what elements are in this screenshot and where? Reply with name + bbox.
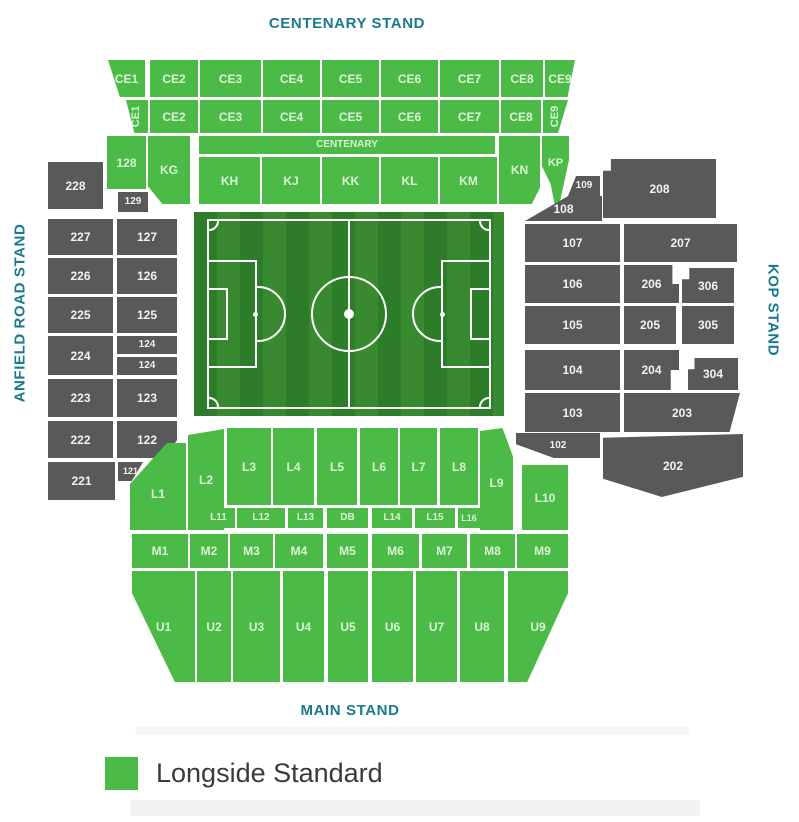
section-l4[interactable]: L4 bbox=[273, 428, 314, 505]
section-label: CE8 bbox=[509, 111, 532, 123]
section-125: 125 bbox=[117, 297, 177, 333]
section-129: 129 bbox=[118, 192, 148, 212]
section-label: 103 bbox=[562, 407, 582, 419]
section-ce3-upper[interactable]: CE3 bbox=[200, 60, 261, 97]
section-kg[interactable]: KG bbox=[148, 136, 190, 204]
section-222: 222 bbox=[48, 421, 113, 458]
section-label: L13 bbox=[297, 513, 314, 523]
section-label: U7 bbox=[429, 621, 444, 633]
pitch-penalty-spot-left bbox=[253, 312, 258, 317]
section-label: U2 bbox=[206, 621, 221, 633]
pitch-goal-area-right bbox=[470, 288, 491, 340]
section-107: 107 bbox=[525, 224, 620, 262]
section-label: 222 bbox=[70, 434, 90, 446]
section-223: 223 bbox=[48, 379, 113, 417]
section-label: L8 bbox=[452, 461, 466, 473]
legend: Longside Standard bbox=[105, 757, 383, 790]
pitch-boundary-line bbox=[207, 219, 491, 409]
section-label: 221 bbox=[71, 475, 91, 487]
section-l6[interactable]: L6 bbox=[360, 428, 398, 505]
centenary-stand-label: CENTENARY STAND bbox=[97, 15, 597, 32]
section-label: 223 bbox=[70, 392, 90, 404]
section-m5[interactable]: M5 bbox=[327, 534, 368, 568]
section-label: KP bbox=[548, 158, 563, 169]
section-306: 306 bbox=[682, 268, 734, 303]
section-l7[interactable]: L7 bbox=[400, 428, 437, 505]
section-ce7-lower[interactable]: CE7 bbox=[440, 100, 499, 133]
section-label: L14 bbox=[383, 513, 400, 523]
section-ce8-upper[interactable]: CE8 bbox=[501, 60, 543, 97]
pitch-centre-spot bbox=[344, 309, 354, 319]
section-label: CE2 bbox=[162, 111, 185, 123]
section-label: CE3 bbox=[219, 73, 242, 85]
section-label: 109 bbox=[576, 181, 593, 191]
section-label: CE5 bbox=[339, 111, 362, 123]
pitch-penalty-spot-right bbox=[440, 312, 445, 317]
section-label: CE1 bbox=[115, 73, 138, 85]
section-label: 107 bbox=[562, 237, 582, 249]
section-label: KJ bbox=[283, 175, 298, 187]
section-label: M2 bbox=[201, 545, 218, 557]
section-105: 105 bbox=[525, 306, 620, 344]
section-kl[interactable]: KL bbox=[381, 157, 438, 204]
section-label: 104 bbox=[562, 364, 582, 376]
section-label: L6 bbox=[372, 461, 386, 473]
section-l10[interactable]: L10 bbox=[522, 465, 568, 530]
section-u1[interactable]: U1 bbox=[132, 571, 195, 682]
section-ce4-lower[interactable]: CE4 bbox=[263, 100, 320, 133]
section-label: CE7 bbox=[458, 111, 481, 123]
section-l14[interactable]: L14 bbox=[372, 508, 412, 528]
section-label: KH bbox=[221, 175, 238, 187]
section-103: 103 bbox=[525, 393, 620, 432]
section-206: 206 bbox=[624, 265, 679, 303]
section-123: 123 bbox=[117, 379, 177, 417]
section-u6[interactable]: U6 bbox=[372, 571, 413, 682]
main-stand-label: MAIN STAND bbox=[100, 702, 600, 719]
section-label: CE2 bbox=[162, 73, 185, 85]
section-ce1-lower[interactable]: CE1 bbox=[126, 100, 148, 133]
section-m9[interactable]: M9 bbox=[517, 534, 568, 568]
section-kn[interactable]: KN bbox=[499, 136, 540, 204]
section-205: 205 bbox=[624, 306, 676, 344]
section-label: M8 bbox=[484, 545, 501, 557]
section-ce3-lower[interactable]: CE3 bbox=[200, 100, 261, 133]
section-l5[interactable]: L5 bbox=[317, 428, 357, 505]
section-l13[interactable]: L13 bbox=[288, 508, 323, 528]
pitch-corner-arc bbox=[207, 397, 219, 409]
section-204: 204 bbox=[624, 350, 679, 390]
section-label: KN bbox=[511, 164, 528, 176]
section-l3[interactable]: L3 bbox=[227, 428, 271, 505]
section-l11[interactable]: L11 bbox=[202, 508, 235, 528]
section-label: 202 bbox=[663, 460, 683, 472]
watermark-bar bbox=[135, 727, 690, 735]
section-label: L5 bbox=[330, 461, 344, 473]
section-label: CE1 bbox=[132, 106, 143, 127]
stadium-seat-map: CENTENARY STAND ANFIELD ROAD STAND KOP S… bbox=[0, 0, 799, 822]
section-label: 305 bbox=[698, 319, 718, 331]
section-label: M5 bbox=[339, 545, 356, 557]
section-kh[interactable]: KH bbox=[199, 157, 260, 204]
section-label: CE8 bbox=[510, 73, 533, 85]
section-label: 105 bbox=[562, 319, 582, 331]
section-108: 108 bbox=[525, 196, 602, 221]
section-104: 104 bbox=[525, 350, 620, 390]
section-m6[interactable]: M6 bbox=[372, 534, 419, 568]
section-kk[interactable]: KK bbox=[322, 157, 379, 204]
section-kj[interactable]: KJ bbox=[262, 157, 320, 204]
section-ce7-upper[interactable]: CE7 bbox=[440, 60, 499, 97]
section-label: M6 bbox=[387, 545, 404, 557]
section-label: KL bbox=[402, 175, 418, 187]
section-u5[interactable]: U5 bbox=[328, 571, 368, 682]
pitch-goal-area-left bbox=[207, 288, 228, 340]
section-label: 226 bbox=[70, 270, 90, 282]
section-label: M1 bbox=[152, 545, 169, 557]
section-102: 102 bbox=[516, 433, 600, 458]
section-label: L4 bbox=[286, 461, 300, 473]
section-label: CE9 bbox=[550, 106, 561, 127]
section-u4[interactable]: U4 bbox=[283, 571, 324, 682]
section-l16[interactable]: L16 bbox=[458, 508, 480, 528]
section-ce9-upper[interactable]: CE9 bbox=[545, 60, 575, 97]
section-226: 226 bbox=[48, 258, 113, 294]
section-label: L16 bbox=[461, 514, 477, 523]
section-label: 106 bbox=[562, 278, 582, 290]
section-label: 208 bbox=[649, 183, 669, 195]
section-305: 305 bbox=[682, 306, 734, 344]
section-u2[interactable]: U2 bbox=[197, 571, 231, 682]
section-203: 203 bbox=[624, 393, 740, 432]
section-225: 225 bbox=[48, 297, 113, 333]
section-l8[interactable]: L8 bbox=[440, 428, 478, 505]
section-db[interactable]: DB bbox=[327, 508, 368, 528]
section-label: 203 bbox=[672, 407, 692, 419]
section-label: 128 bbox=[116, 157, 136, 169]
section-304: 304 bbox=[688, 358, 738, 390]
section-l15[interactable]: L15 bbox=[415, 508, 455, 528]
section-ce5-upper[interactable]: CE5 bbox=[322, 60, 379, 97]
section-label: L11 bbox=[210, 513, 227, 523]
section-label: CE5 bbox=[339, 73, 362, 85]
section-label: CE6 bbox=[398, 111, 421, 123]
section-l9[interactable]: L9 bbox=[480, 428, 513, 530]
section-label: 227 bbox=[70, 231, 90, 243]
section-label: L12 bbox=[252, 513, 269, 523]
section-label: 224 bbox=[70, 350, 90, 362]
section-label: L3 bbox=[242, 461, 256, 473]
pitch-corner-arc bbox=[207, 219, 219, 231]
pitch-corner-arc bbox=[479, 397, 491, 409]
section-ce8-lower[interactable]: CE8 bbox=[501, 100, 541, 133]
football-pitch bbox=[194, 212, 504, 416]
section-221: 221 bbox=[48, 462, 115, 500]
section-label: U3 bbox=[249, 621, 264, 633]
section-label: 123 bbox=[137, 392, 157, 404]
section-label: M9 bbox=[534, 545, 551, 557]
section-label: U4 bbox=[296, 621, 311, 633]
section-202: 202 bbox=[603, 434, 743, 497]
legend-label: Longside Standard bbox=[156, 758, 383, 789]
section-label: 126 bbox=[137, 270, 157, 282]
section-ce2-lower[interactable]: CE2 bbox=[150, 100, 198, 133]
section-124-lower: 124 bbox=[117, 357, 177, 375]
section-m4[interactable]: M4 bbox=[275, 534, 323, 568]
section-label: L15 bbox=[426, 513, 443, 523]
section-label: 122 bbox=[137, 434, 157, 446]
section-ce9-lower[interactable]: CE9 bbox=[543, 100, 568, 133]
section-label: CE3 bbox=[219, 111, 242, 123]
section-label: L9 bbox=[489, 477, 503, 489]
section-label: U8 bbox=[474, 621, 489, 633]
section-label: L7 bbox=[411, 461, 425, 473]
section-label: KM bbox=[459, 175, 478, 187]
section-u9[interactable]: U9 bbox=[508, 571, 568, 682]
section-label: 129 bbox=[125, 197, 142, 207]
section-label: 205 bbox=[640, 319, 660, 331]
section-label: M3 bbox=[243, 545, 260, 557]
section-label: M7 bbox=[436, 545, 453, 557]
section-label: L10 bbox=[535, 492, 556, 504]
section-m7[interactable]: M7 bbox=[422, 534, 467, 568]
section-label: CE7 bbox=[458, 73, 481, 85]
section-u3[interactable]: U3 bbox=[233, 571, 280, 682]
section-label: DB bbox=[340, 513, 354, 523]
section-m8[interactable]: M8 bbox=[470, 534, 515, 568]
section-ce6-upper[interactable]: CE6 bbox=[381, 60, 438, 97]
section-u8[interactable]: U8 bbox=[460, 571, 504, 682]
section-126: 126 bbox=[117, 258, 177, 294]
section-label: 306 bbox=[698, 280, 718, 292]
kop-stand-label: KOP STAND bbox=[765, 264, 782, 356]
section-m3[interactable]: M3 bbox=[230, 534, 273, 568]
section-label: L1 bbox=[151, 488, 165, 500]
section-ce6-lower[interactable]: CE6 bbox=[381, 100, 438, 133]
section-m2[interactable]: M2 bbox=[190, 534, 228, 568]
section-label: 124 bbox=[139, 361, 156, 371]
section-106: 106 bbox=[525, 265, 620, 303]
section-224: 224 bbox=[48, 336, 113, 375]
section-label: M4 bbox=[291, 545, 308, 557]
pitch-corner-arc bbox=[479, 219, 491, 231]
section-ce5-lower[interactable]: CE5 bbox=[322, 100, 379, 133]
watermark-bar bbox=[130, 800, 700, 816]
legend-swatch-longside-standard bbox=[105, 757, 138, 790]
section-label: CE4 bbox=[280, 111, 303, 123]
section-label: CE4 bbox=[280, 73, 303, 85]
section-227: 227 bbox=[48, 219, 113, 255]
section-label: 121 bbox=[123, 467, 138, 476]
section-109: 109 bbox=[568, 176, 600, 196]
section-km[interactable]: KM bbox=[440, 157, 497, 204]
section-label: 102 bbox=[550, 441, 567, 451]
section-ce1-upper[interactable]: CE1 bbox=[108, 60, 145, 97]
section-label: KK bbox=[342, 175, 359, 187]
section-label: 108 bbox=[553, 203, 573, 215]
section-228: 228 bbox=[48, 162, 103, 209]
section-label: 225 bbox=[70, 309, 90, 321]
section-label: U1 bbox=[156, 621, 171, 633]
section-label: L2 bbox=[199, 474, 213, 486]
section-centenary-strip[interactable]: CENTENARY bbox=[199, 136, 495, 154]
section-207: 207 bbox=[624, 224, 737, 262]
section-label: 127 bbox=[137, 231, 157, 243]
section-label: 125 bbox=[137, 309, 157, 321]
section-208: 208 bbox=[603, 159, 716, 218]
section-ce4-upper[interactable]: CE4 bbox=[263, 60, 320, 97]
section-ce2-upper[interactable]: CE2 bbox=[150, 60, 198, 97]
section-label: 228 bbox=[65, 180, 85, 192]
section-label: U5 bbox=[340, 621, 355, 633]
section-label: CE9 bbox=[548, 73, 571, 85]
section-label: CE6 bbox=[398, 73, 421, 85]
section-124-upper: 124 bbox=[117, 336, 177, 354]
section-label: U6 bbox=[385, 621, 400, 633]
section-label: KG bbox=[160, 164, 178, 176]
section-label: 304 bbox=[703, 368, 723, 380]
section-label: 124 bbox=[139, 340, 156, 350]
section-u7[interactable]: U7 bbox=[416, 571, 457, 682]
section-label: 206 bbox=[641, 278, 661, 290]
section-label: U9 bbox=[530, 621, 545, 633]
section-128[interactable]: 128 bbox=[107, 136, 146, 189]
section-l12[interactable]: L12 bbox=[237, 508, 285, 528]
section-label: 207 bbox=[670, 237, 690, 249]
section-m1[interactable]: M1 bbox=[132, 534, 188, 568]
anfield-road-stand-label: ANFIELD ROAD STAND bbox=[12, 224, 29, 403]
section-127: 127 bbox=[117, 219, 177, 255]
section-label: 204 bbox=[641, 364, 661, 376]
section-label: CENTENARY bbox=[316, 140, 378, 150]
